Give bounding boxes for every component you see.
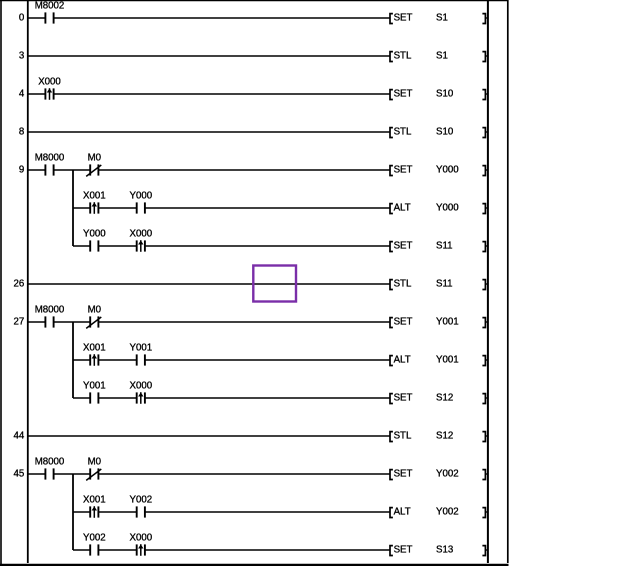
svg-text:3: 3 <box>19 50 24 61</box>
svg-text:Y000: Y000 <box>83 228 106 239</box>
svg-text:Y001: Y001 <box>83 380 106 391</box>
svg-text:STL: STL <box>394 430 412 441</box>
svg-text:M8000: M8000 <box>35 456 65 467</box>
svg-text:STL: STL <box>394 126 412 137</box>
svg-text:S10: S10 <box>436 126 454 137</box>
svg-text:8: 8 <box>19 126 24 137</box>
svg-text:M8000: M8000 <box>35 152 65 163</box>
svg-text:ALT: ALT <box>394 354 411 365</box>
svg-text:SET: SET <box>394 88 413 99</box>
svg-text:M0: M0 <box>88 456 102 467</box>
svg-text:27: 27 <box>14 316 25 327</box>
svg-text:SET: SET <box>394 12 413 23</box>
svg-text:STL: STL <box>394 50 412 61</box>
svg-text:SET: SET <box>394 316 413 327</box>
svg-text:44: 44 <box>14 430 25 441</box>
svg-text:X001: X001 <box>83 190 106 201</box>
svg-text:S11: S11 <box>436 240 453 251</box>
svg-text:Y002: Y002 <box>436 506 459 517</box>
svg-text:X000: X000 <box>129 228 152 239</box>
svg-text:Y001: Y001 <box>129 342 152 353</box>
svg-text:SET: SET <box>394 468 413 479</box>
svg-text:S13: S13 <box>436 544 453 555</box>
svg-text:Y002: Y002 <box>129 494 152 505</box>
svg-text:S1: S1 <box>436 50 448 61</box>
svg-text:X001: X001 <box>83 342 106 353</box>
svg-text:ALT: ALT <box>394 202 411 213</box>
svg-text:26: 26 <box>14 278 25 289</box>
svg-text:Y000: Y000 <box>129 190 152 201</box>
svg-text:Y000: Y000 <box>436 164 459 175</box>
svg-text:X000: X000 <box>129 532 152 543</box>
svg-text:ALT: ALT <box>394 506 411 517</box>
svg-text:Y001: Y001 <box>436 354 459 365</box>
svg-text:9: 9 <box>19 164 24 175</box>
svg-text:M8000: M8000 <box>35 304 65 315</box>
svg-text:S12: S12 <box>436 430 453 441</box>
svg-text:S12: S12 <box>436 392 453 403</box>
svg-text:S1: S1 <box>436 12 448 23</box>
svg-text:SET: SET <box>394 164 413 175</box>
svg-text:SET: SET <box>394 240 413 251</box>
svg-text:0: 0 <box>19 12 25 23</box>
svg-text:4: 4 <box>19 88 25 99</box>
svg-text:X001: X001 <box>83 494 106 505</box>
svg-text:Y001: Y001 <box>436 316 459 327</box>
svg-text:Y002: Y002 <box>83 532 106 543</box>
svg-text:Y002: Y002 <box>436 468 459 479</box>
svg-text:X000: X000 <box>38 76 61 87</box>
svg-text:45: 45 <box>14 468 25 479</box>
svg-text:X000: X000 <box>129 380 152 391</box>
svg-text:S10: S10 <box>436 88 454 99</box>
svg-text:S11: S11 <box>436 278 453 289</box>
svg-text:M0: M0 <box>88 304 102 315</box>
svg-text:SET: SET <box>394 544 413 555</box>
svg-text:Y000: Y000 <box>436 202 459 213</box>
svg-text:STL: STL <box>394 278 412 289</box>
svg-text:SET: SET <box>394 392 413 403</box>
svg-text:M0: M0 <box>88 152 102 163</box>
svg-text:M8002: M8002 <box>35 0 65 11</box>
